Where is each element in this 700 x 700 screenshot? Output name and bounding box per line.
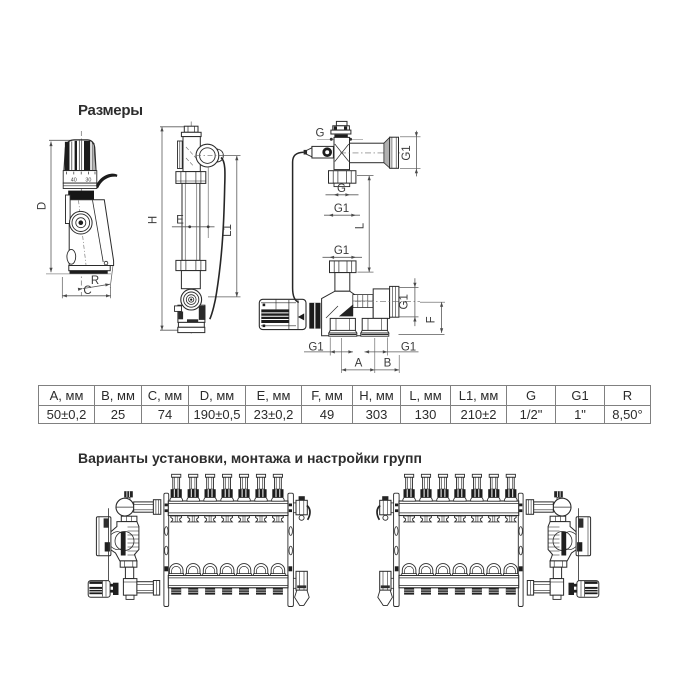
svg-text:G: G bbox=[316, 128, 325, 140]
svg-text:R: R bbox=[91, 275, 99, 287]
svg-text:40: 40 bbox=[71, 177, 77, 183]
svg-text:G: G bbox=[337, 183, 346, 195]
svg-text:H: H bbox=[148, 216, 160, 224]
svg-text:G1: G1 bbox=[401, 145, 413, 160]
svg-text:G1: G1 bbox=[401, 341, 416, 353]
svg-text:B: B bbox=[384, 358, 392, 370]
svg-text:D: D bbox=[36, 202, 48, 210]
svg-text:F: F bbox=[425, 316, 437, 323]
svg-text:G1: G1 bbox=[334, 245, 349, 257]
svg-text:G1: G1 bbox=[399, 294, 411, 309]
svg-text:G1: G1 bbox=[308, 341, 323, 353]
svg-text:E: E bbox=[176, 214, 184, 226]
svg-text:C: C bbox=[83, 285, 91, 297]
svg-text:A: A bbox=[355, 358, 363, 370]
svg-text:G1: G1 bbox=[334, 203, 349, 215]
svg-text:L: L bbox=[355, 222, 367, 229]
svg-text:30: 30 bbox=[85, 177, 91, 183]
